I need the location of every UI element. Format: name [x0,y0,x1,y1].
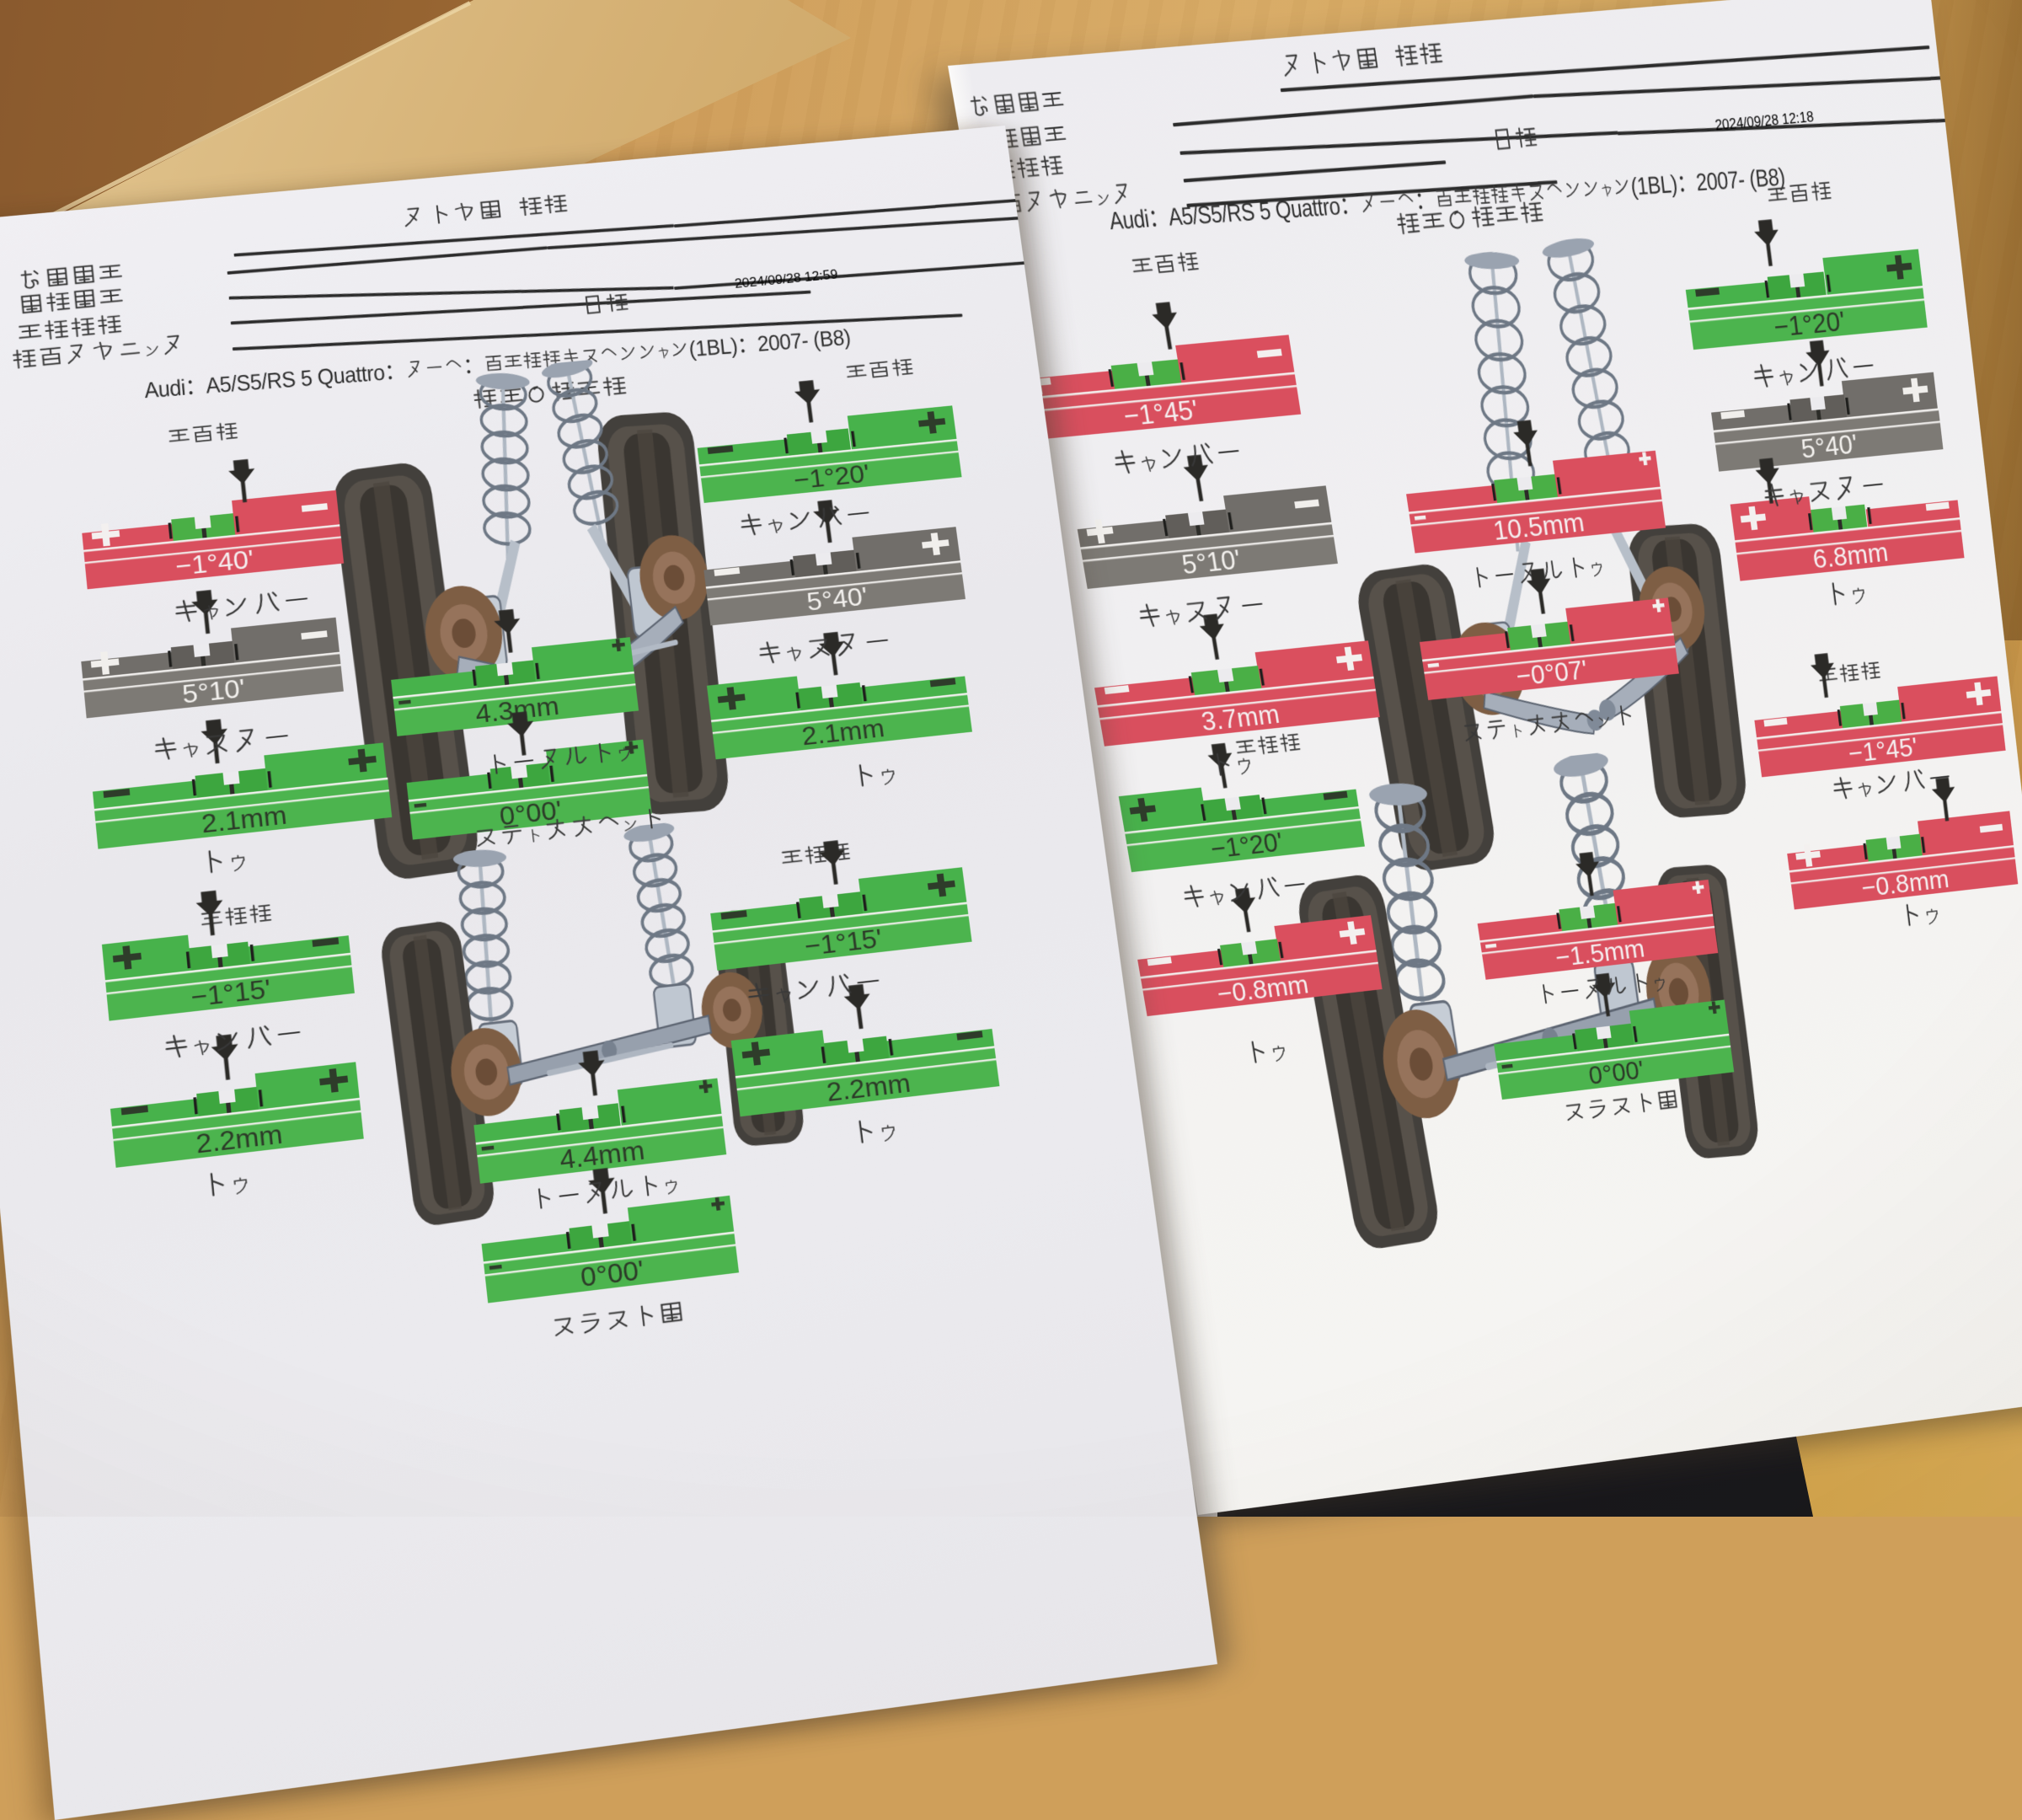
svg-text:0°00': 0°00' [579,1255,645,1293]
svg-text:0°00': 0°00' [1587,1056,1646,1090]
svg-text:−1°45': −1°45' [1121,394,1200,432]
svg-text:5°10': 5°10' [181,673,247,709]
svg-text:−1°20': −1°20' [1773,306,1847,343]
svg-text:5°10': 5°10' [1179,544,1242,581]
svg-text:5°40': 5°40' [1800,429,1859,464]
svg-text:5°40': 5°40' [805,581,869,616]
svg-text:6.8mm: 6.8mm [1811,538,1890,575]
svg-text:−1°45': −1°45' [1847,732,1919,768]
